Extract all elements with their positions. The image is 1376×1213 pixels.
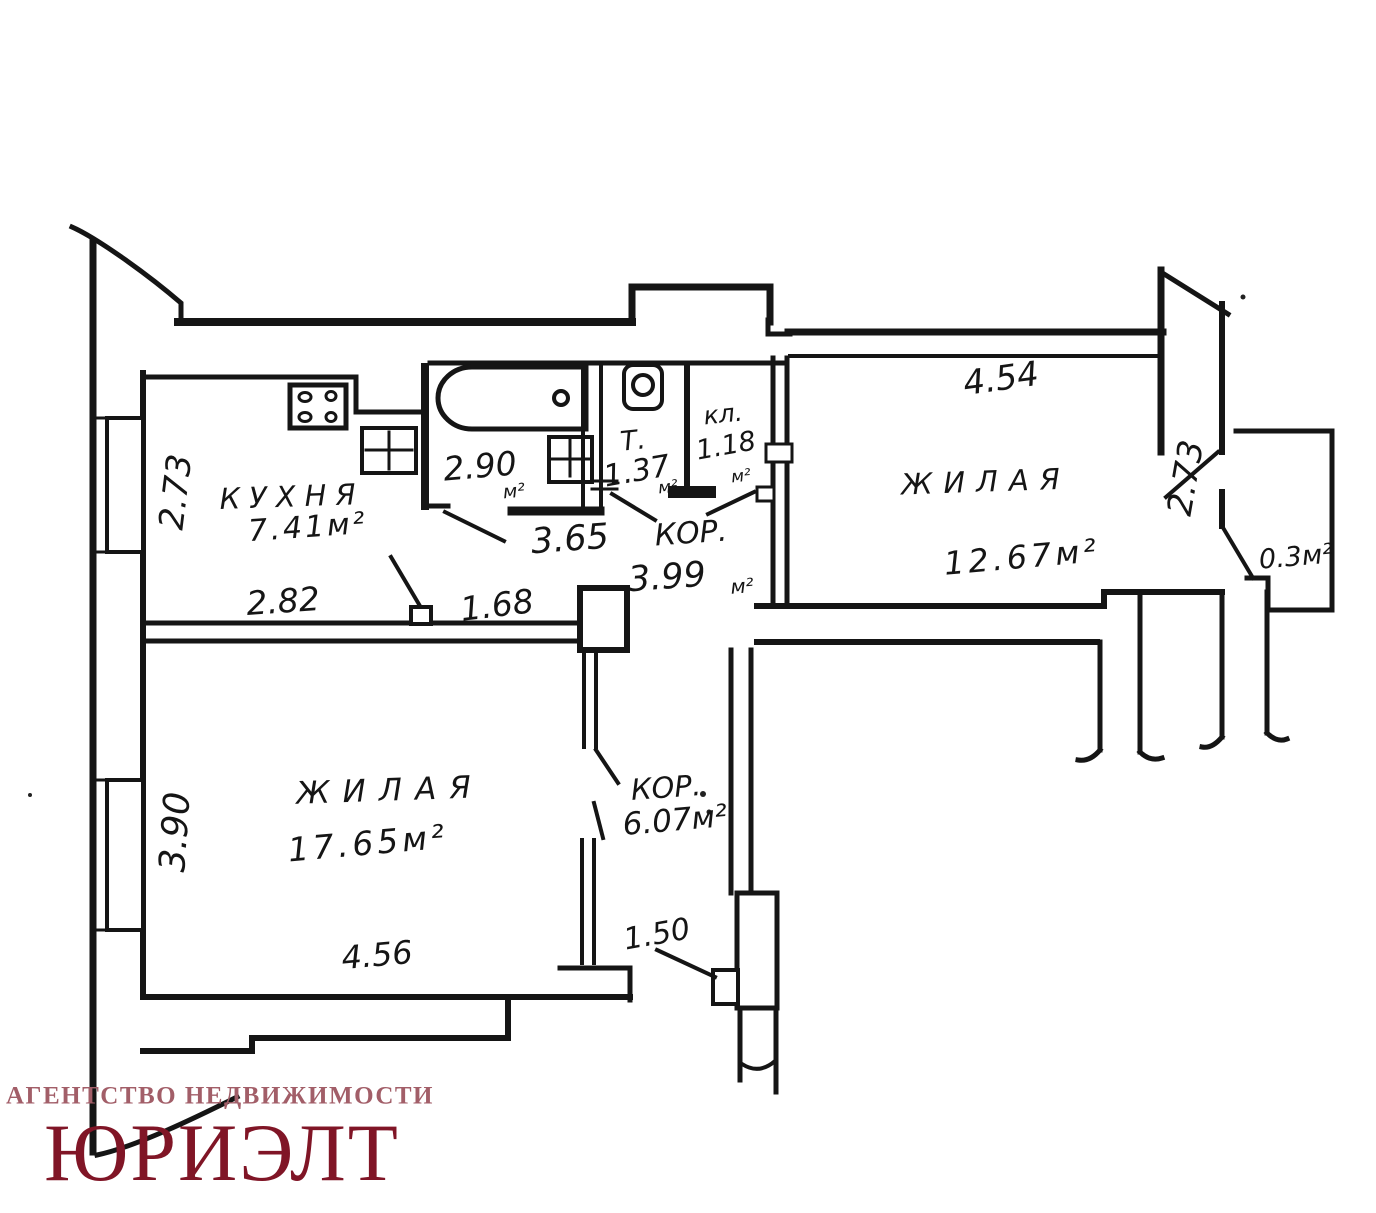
dim-kitchen-width: 2.82: [245, 582, 321, 620]
bathtub: [438, 367, 586, 429]
bath-unit-label: м²: [502, 482, 526, 503]
exterior-walls: [72, 227, 1287, 1155]
dim-kitchen-right: 1.68: [459, 584, 536, 626]
toilet-abbr-label: Т.: [619, 426, 647, 455]
toilet-unit-label: м²: [657, 479, 678, 498]
hall-top-area-label: 3.99: [627, 558, 707, 598]
bath-area-label: 2.90: [442, 446, 518, 485]
hall-top-unit-label: м²: [730, 575, 754, 597]
balcony-area-label: 0.3м²: [1258, 540, 1334, 573]
agency-brand-logo: ЮРИЭЛТ: [44, 1112, 400, 1194]
hall-bottom-abbr-label: КОР.: [630, 771, 702, 805]
dim-bath-width: 3.65: [530, 520, 610, 560]
dim-living-right-width: 4.54: [961, 357, 1041, 401]
floor-plan-drawing: [0, 0, 1376, 1213]
dim-living-left-height: 3.90: [155, 791, 197, 873]
floor-plan-page: КУХНЯ 7.41м² ЖИЛАЯ 17.65м² ЖИЛАЯ 12.67м²…: [0, 0, 1376, 1213]
bathtub-drain: [554, 391, 568, 405]
dim-kitchen-left: 2.73: [155, 452, 198, 531]
agency-tagline: АГЕНТСТВО НЕДВИЖИМОСТИ: [6, 1084, 434, 1109]
living-left-name-label: ЖИЛАЯ: [296, 772, 485, 810]
kitchen-window: [107, 418, 143, 552]
toilet-lid: [633, 375, 653, 395]
hall-bottom-area-label: 6.07м²: [621, 801, 728, 841]
hall-top-abbr-label: КОР.: [654, 517, 728, 552]
windows: [93, 418, 143, 930]
balcony: [1236, 431, 1332, 610]
living-right-name-label: ЖИЛАЯ: [901, 465, 1072, 500]
closet-unit-label: м²: [730, 468, 751, 487]
toilet: [624, 365, 662, 409]
stove: [290, 385, 346, 428]
living-window: [107, 780, 143, 930]
kitchen-area-label: 7.41м²: [247, 509, 368, 547]
dim-living-left-width: 4.56: [340, 936, 414, 974]
closet-abbr-label: кл.: [702, 400, 743, 429]
